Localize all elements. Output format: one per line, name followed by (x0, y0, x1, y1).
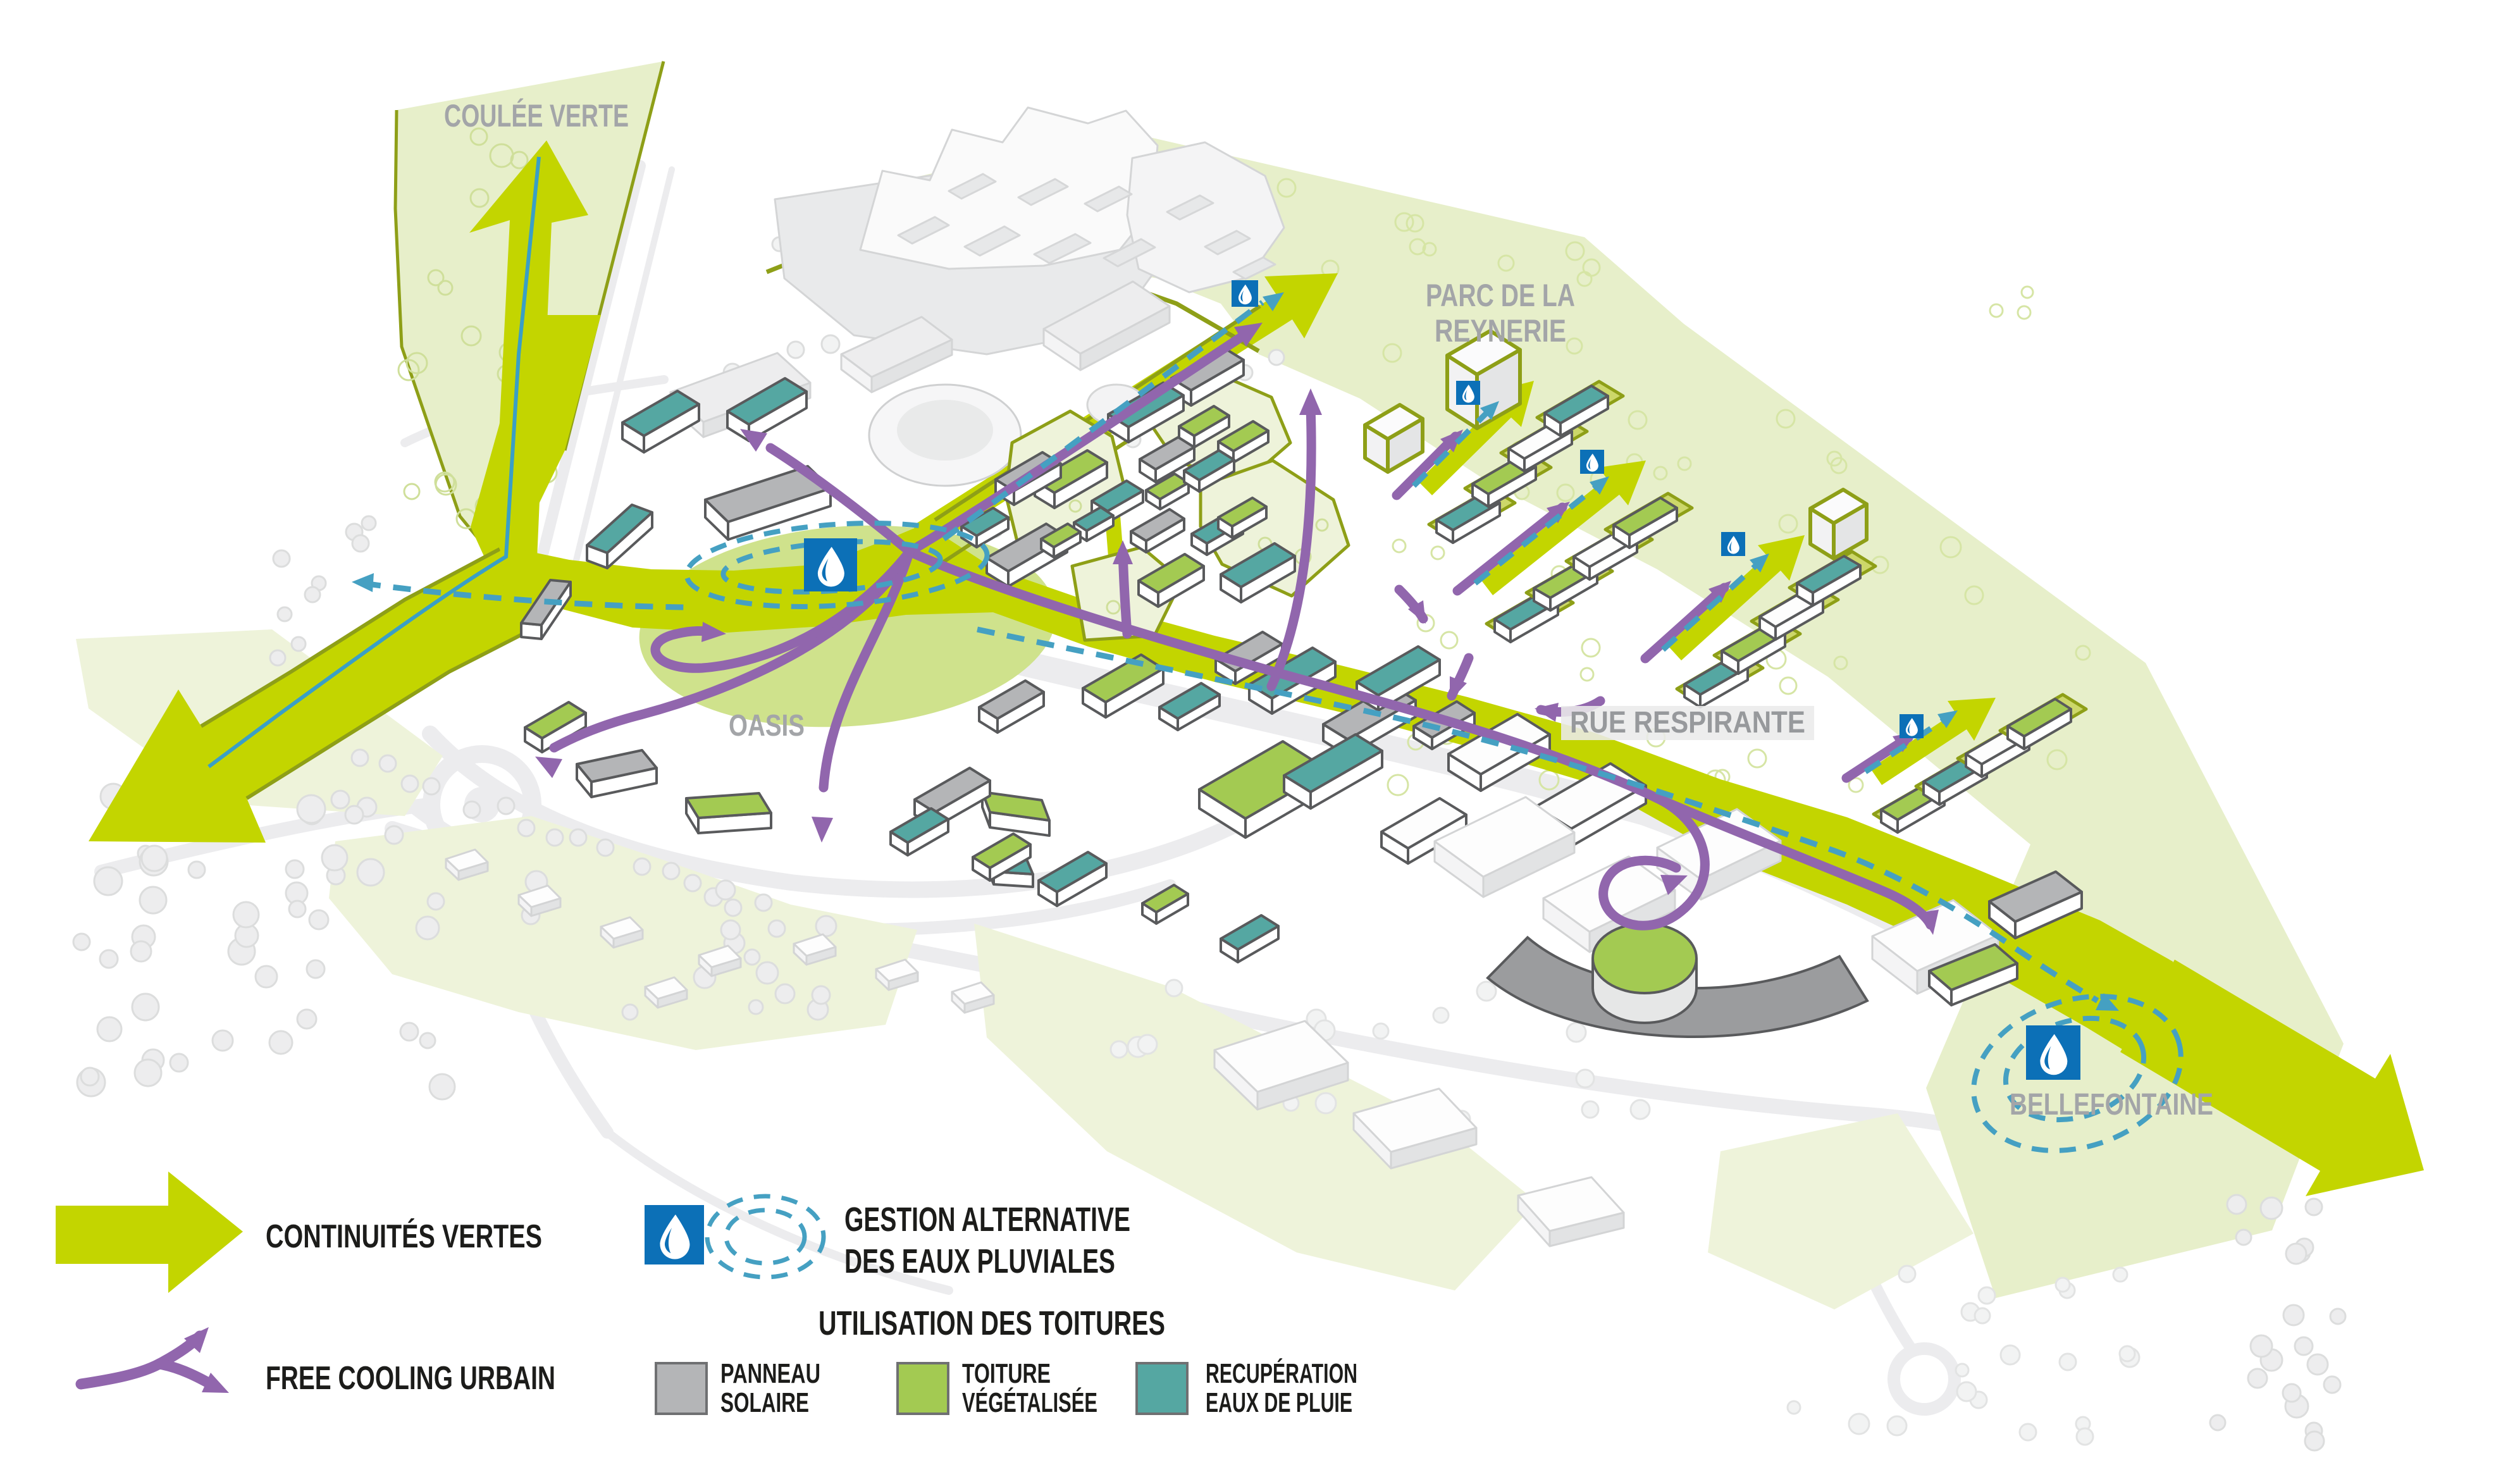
svg-text:UTILISATION DES TOITURES: UTILISATION DES TOITURES (819, 1304, 1165, 1342)
svg-text:EAUX DE PLUIE: EAUX DE PLUIE (1206, 1387, 1352, 1418)
svg-text:FREE COOLING URBAIN: FREE COOLING URBAIN (266, 1360, 555, 1397)
svg-text:PARC DE LA: PARC DE LA (1426, 278, 1575, 313)
svg-text:COULÉE VERTE: COULÉE VERTE (444, 98, 629, 133)
svg-text:TOITURE: TOITURE (962, 1358, 1051, 1389)
svg-text:CONTINUITÉS VERTES: CONTINUITÉS VERTES (266, 1218, 542, 1255)
svg-text:VÉGÉTALISÉE: VÉGÉTALISÉE (962, 1387, 1097, 1418)
svg-text:RECUPÉRATION: RECUPÉRATION (1206, 1357, 1357, 1389)
svg-text:REYNERIE: REYNERIE (1435, 313, 1566, 349)
svg-text:GESTION ALTERNATIVE: GESTION ALTERNATIVE (844, 1201, 1130, 1239)
svg-text:PANNEAU: PANNEAU (720, 1358, 820, 1389)
svg-text:OASIS: OASIS (729, 709, 805, 743)
svg-text:SOLAIRE: SOLAIRE (720, 1387, 809, 1418)
svg-text:RUE RESPIRANTE: RUE RESPIRANTE (1570, 706, 1805, 739)
svg-text:BELLEFONTAINE: BELLEFONTAINE (2010, 1088, 2213, 1122)
svg-text:DES EAUX PLUVIALES: DES EAUX PLUVIALES (844, 1242, 1115, 1280)
